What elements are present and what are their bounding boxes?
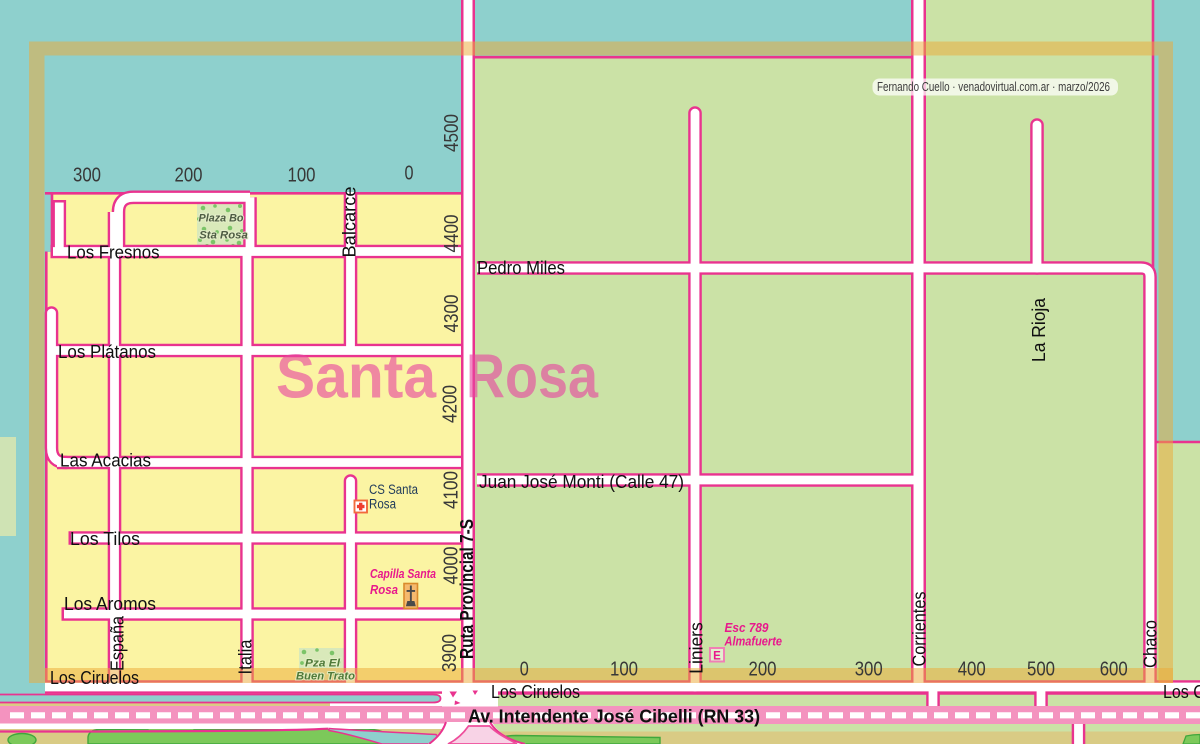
svg-text:Los Ciruelos: Los Ciruelos (1163, 682, 1200, 702)
svg-text:4400: 4400 (440, 215, 463, 253)
svg-text:0: 0 (520, 658, 529, 681)
svg-text:Rosa: Rosa (370, 582, 398, 597)
svg-text:Corrientes: Corrientes (910, 592, 930, 667)
svg-text:España: España (108, 615, 128, 671)
svg-text:Av. Intendente José Cibelli (R: Av. Intendente José Cibelli (RN 33) (468, 707, 760, 727)
svg-text:4200: 4200 (439, 385, 462, 423)
svg-text:200: 200 (175, 164, 203, 187)
svg-text:Juan José Monti (Calle 47): Juan José Monti (Calle 47) (479, 472, 684, 492)
svg-text:Plaza Bo: Plaza Bo (199, 213, 244, 225)
svg-text:0: 0 (405, 162, 414, 185)
svg-text:Liniers: Liniers (687, 622, 707, 674)
svg-text:E: E (713, 651, 721, 663)
svg-text:600: 600 (1100, 658, 1128, 681)
svg-text:Rosa: Rosa (466, 343, 598, 412)
svg-text:CS Santa: CS Santa (369, 482, 418, 497)
svg-text:300: 300 (855, 658, 883, 681)
svg-text:4000: 4000 (440, 547, 463, 585)
svg-text:Capilla Santa: Capilla Santa (370, 566, 436, 581)
svg-text:100: 100 (288, 164, 316, 187)
svg-text:200: 200 (749, 658, 777, 681)
svg-text:Sta Rosa: Sta Rosa (199, 230, 248, 242)
svg-text:400: 400 (958, 658, 986, 681)
svg-text:Buen Trato: Buen Trato (296, 671, 355, 683)
svg-text:Pza El: Pza El (305, 658, 341, 670)
svg-text:Fernando Cuello · venadovirtua: Fernando Cuello · venadovirtual.com.ar ·… (877, 80, 1110, 94)
svg-text:Los Tilos: Los Tilos (70, 529, 140, 549)
svg-text:100: 100 (610, 658, 638, 681)
svg-text:4500: 4500 (440, 114, 463, 152)
svg-text:La Rioja: La Rioja (1029, 297, 1049, 362)
svg-text:500: 500 (1027, 658, 1055, 681)
svg-text:Los Aromos: Los Aromos (64, 594, 156, 614)
svg-text:Chaco: Chaco (1141, 620, 1161, 668)
svg-text:4100: 4100 (440, 471, 463, 509)
svg-text:Los Plátanos: Los Plátanos (58, 342, 156, 362)
svg-text:4300: 4300 (440, 295, 463, 333)
svg-text:Almafuerte: Almafuerte (724, 634, 782, 649)
svg-text:Italia: Italia (236, 639, 256, 675)
svg-text:Balcarce: Balcarce (340, 187, 360, 258)
svg-text:3900: 3900 (438, 634, 461, 672)
svg-text:Los Ciruelos: Los Ciruelos (491, 682, 580, 702)
svg-text:Las Acacias: Las Acacias (60, 451, 151, 471)
svg-text:Santa: Santa (276, 343, 436, 412)
svg-text:Rosa: Rosa (369, 497, 396, 512)
svg-text:Pedro Miles: Pedro Miles (477, 258, 565, 278)
svg-text:300: 300 (73, 164, 101, 187)
svg-text:Los Fresnos: Los Fresnos (67, 243, 160, 263)
